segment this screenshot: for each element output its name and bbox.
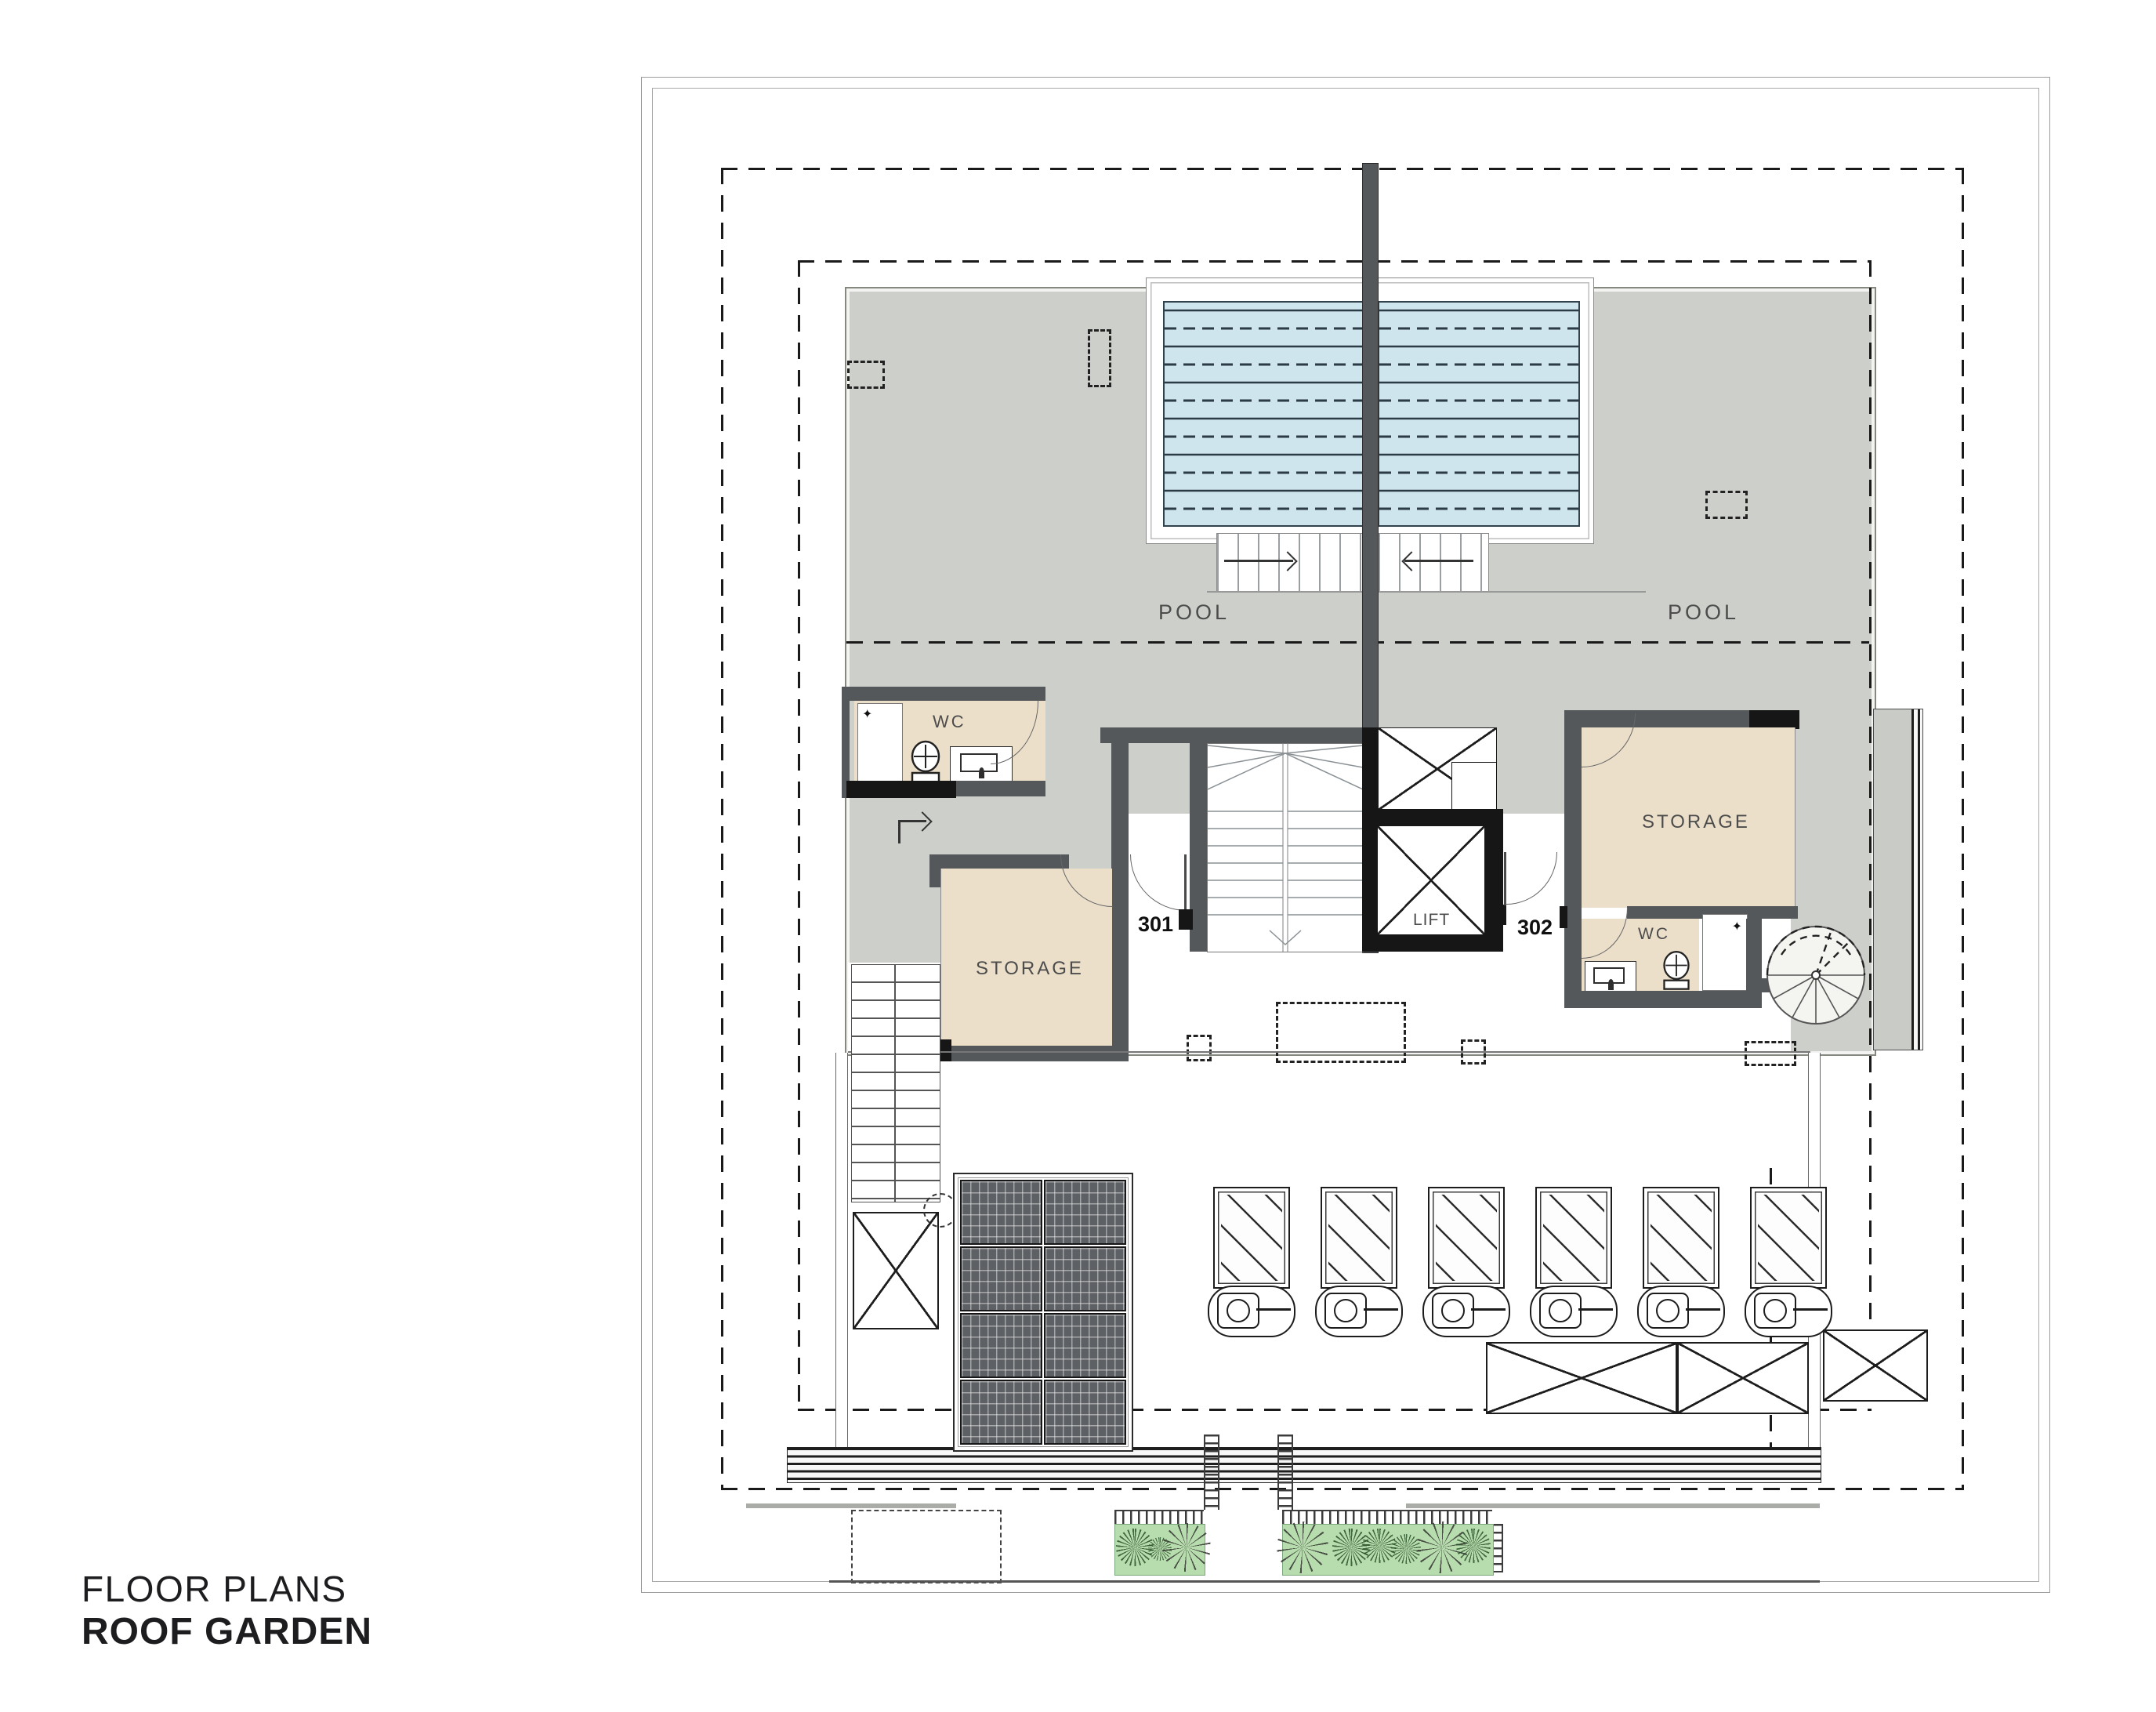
lounger-dial <box>1549 1299 1572 1322</box>
solar-panel <box>1044 1180 1126 1245</box>
solar-panel-array <box>953 1173 1133 1452</box>
stair-wall-top <box>1100 727 1364 743</box>
pool-right-label: POOL <box>1668 600 1739 625</box>
page-title-line1: FLOOR PLANS <box>82 1568 347 1610</box>
storage-left-label: STORAGE <box>976 958 1084 980</box>
lounger-table <box>1432 1293 1474 1329</box>
lounger-hatch <box>1436 1195 1497 1281</box>
lounger-table <box>1754 1293 1796 1329</box>
lounger-hatch <box>1758 1195 1819 1281</box>
solar-panel <box>960 1380 1042 1445</box>
lounger-table <box>1324 1293 1367 1329</box>
right-planter-wall-lines <box>1911 709 1922 1050</box>
wc-left-wall-top <box>846 687 1045 701</box>
storage-right-label: STORAGE <box>1642 811 1750 833</box>
palm-plant-icon <box>1162 1523 1211 1572</box>
terrace-edge-top <box>848 1051 1810 1053</box>
pool-left-label: POOL <box>1158 600 1230 625</box>
storage-left-wall-bottom <box>939 1046 1129 1061</box>
lounger-table <box>1217 1293 1259 1329</box>
wc-right-wall-bottom <box>1564 991 1762 1008</box>
sun-lounger-base <box>1530 1286 1618 1337</box>
solar-panel <box>960 1246 1042 1311</box>
sun-lounger-base <box>1745 1286 1832 1337</box>
lift-wall-right <box>1484 826 1503 952</box>
x-planter <box>1677 1342 1809 1414</box>
wc-left-wall-bottom <box>956 781 1045 796</box>
pool-left <box>1163 301 1365 527</box>
main-stair <box>1207 743 1364 952</box>
wc-left-wall-bottom-black <box>846 781 956 798</box>
wc-left-label: WC <box>933 712 966 732</box>
lift-label: LIFT <box>1411 911 1452 930</box>
sun-lounger-mat <box>1750 1187 1827 1289</box>
lounger-dial <box>1334 1299 1357 1322</box>
pool-steps-baseline <box>1207 591 1646 593</box>
solar-panel <box>960 1313 1042 1378</box>
lift-wall-top <box>1362 809 1503 826</box>
roof-anchor-bracket <box>1705 491 1748 519</box>
roof-anchor-bracket <box>847 361 885 389</box>
wc-right-wall-closet <box>1746 919 1762 991</box>
garden-curb-left <box>746 1503 956 1508</box>
lounger-table <box>1539 1293 1582 1329</box>
door-302-leaf <box>1504 852 1506 905</box>
storage-right-wall-left <box>1564 710 1582 1008</box>
roof-outline-outer-top <box>721 168 1964 170</box>
door-301-leaf <box>1184 854 1187 911</box>
page-title-line2: ROOF GARDEN <box>82 1610 372 1653</box>
solar-panel <box>960 1180 1042 1245</box>
sun-lounger-mat <box>1213 1187 1290 1289</box>
roof-outline-outer-right <box>1962 168 1964 1490</box>
sun-lounger-base <box>1422 1286 1510 1337</box>
trellis-strip <box>1204 1435 1219 1510</box>
lift-cab: LIFT <box>1378 826 1484 934</box>
lounger-axle <box>1686 1308 1720 1311</box>
upper-floor-outline-line <box>846 641 1869 644</box>
spiral-stair <box>1764 923 1868 1027</box>
x-planter <box>1486 1342 1677 1414</box>
walkway-dashed-outline <box>1276 1002 1406 1063</box>
drawing-sheet: ✦ WC STORAGE <box>0 0 2156 1712</box>
sun-lounger-mat <box>1535 1187 1612 1289</box>
sun-lounger-base <box>1208 1286 1295 1337</box>
unit-302-label: 302 <box>1517 916 1553 940</box>
pool-right-lanes <box>1379 303 1578 525</box>
plant-icon <box>1456 1529 1491 1563</box>
roof-anchor-bracket <box>1088 329 1111 387</box>
toilet-icon <box>1660 948 1693 991</box>
main-stair-treads <box>1208 744 1363 952</box>
x-planter <box>1823 1329 1928 1402</box>
sun-lounger-mat <box>1321 1187 1397 1289</box>
roof-outline-inner-left <box>798 260 800 1411</box>
sink-tap <box>979 767 984 778</box>
lounger-dial <box>1656 1299 1680 1322</box>
solar-panel <box>1044 1246 1126 1311</box>
lounger-axle <box>1793 1308 1828 1311</box>
garden-curb-right <box>1406 1503 1820 1508</box>
roof-outline-outer-bottom <box>721 1488 1964 1490</box>
solar-panel <box>1044 1380 1126 1445</box>
vent-shaft-notch <box>1451 762 1497 811</box>
door-302-jamb <box>1497 905 1506 925</box>
storage-right-wall-top-black <box>1749 710 1799 729</box>
pool-steps-right <box>1378 533 1489 593</box>
toilet-icon <box>908 738 944 784</box>
terrace-wall-left <box>835 1053 848 1449</box>
sink-icon <box>1585 961 1636 992</box>
lounger-hatch <box>1221 1195 1282 1281</box>
solar-panel <box>1044 1313 1126 1378</box>
door-301-jamb <box>1179 909 1193 930</box>
roof-outline-outer-left <box>721 168 723 1490</box>
storage-left-wall-right <box>1111 727 1129 1061</box>
lounger-hatch <box>1651 1195 1712 1281</box>
wc-right-label: WC <box>1638 925 1670 944</box>
pool-right <box>1378 301 1580 527</box>
lift-wall-left <box>1362 727 1378 952</box>
lounger-axle <box>1578 1308 1613 1311</box>
side-stair <box>851 964 940 1202</box>
sun-lounger-base <box>1315 1286 1403 1337</box>
entry-arrow-shaft-v <box>898 820 900 843</box>
lounger-table <box>1647 1293 1689 1329</box>
lounger-dial <box>1763 1299 1787 1322</box>
side-stair-divider <box>894 965 896 1202</box>
sun-lounger-base <box>1637 1286 1725 1337</box>
sun-lounger-mat <box>1643 1187 1719 1289</box>
lounger-axle <box>1256 1308 1291 1311</box>
wc-right-closet: ✦ <box>1702 914 1748 991</box>
lounger-hatch <box>1543 1195 1604 1281</box>
lounger-dial <box>1227 1299 1250 1322</box>
lounger-axle <box>1471 1308 1506 1311</box>
garden-baseline <box>829 1580 1820 1583</box>
roof-outline-inner-top <box>798 260 1872 263</box>
sun-lounger-mat <box>1428 1187 1505 1289</box>
lift-wall-bottom <box>1362 934 1503 952</box>
lounger-hatch <box>1328 1195 1390 1281</box>
sparkle-icon: ✦ <box>862 709 872 721</box>
wc-left-closet: ✦ <box>857 703 903 782</box>
palm-plant-icon <box>1277 1522 1328 1573</box>
roof-outline-inner-right <box>1869 260 1872 1411</box>
entry-porch-dashed <box>851 1510 1002 1583</box>
lounger-dial <box>1441 1299 1465 1322</box>
trellis-strip <box>1277 1435 1293 1510</box>
unit-301-label: 301 <box>1138 912 1173 937</box>
lounger-axle <box>1364 1308 1398 1311</box>
roof-anchor-bracket <box>1745 1041 1796 1066</box>
wc-right-nub <box>1560 906 1567 928</box>
x-planter <box>853 1212 939 1329</box>
pool-left-lanes <box>1165 303 1364 525</box>
column-marker <box>1187 1035 1212 1061</box>
sparkle-icon: ✦ <box>1732 921 1742 934</box>
sink-tap <box>1608 979 1614 990</box>
right-planter-wall <box>1873 709 1923 1050</box>
terrace-parapet <box>787 1447 1821 1483</box>
